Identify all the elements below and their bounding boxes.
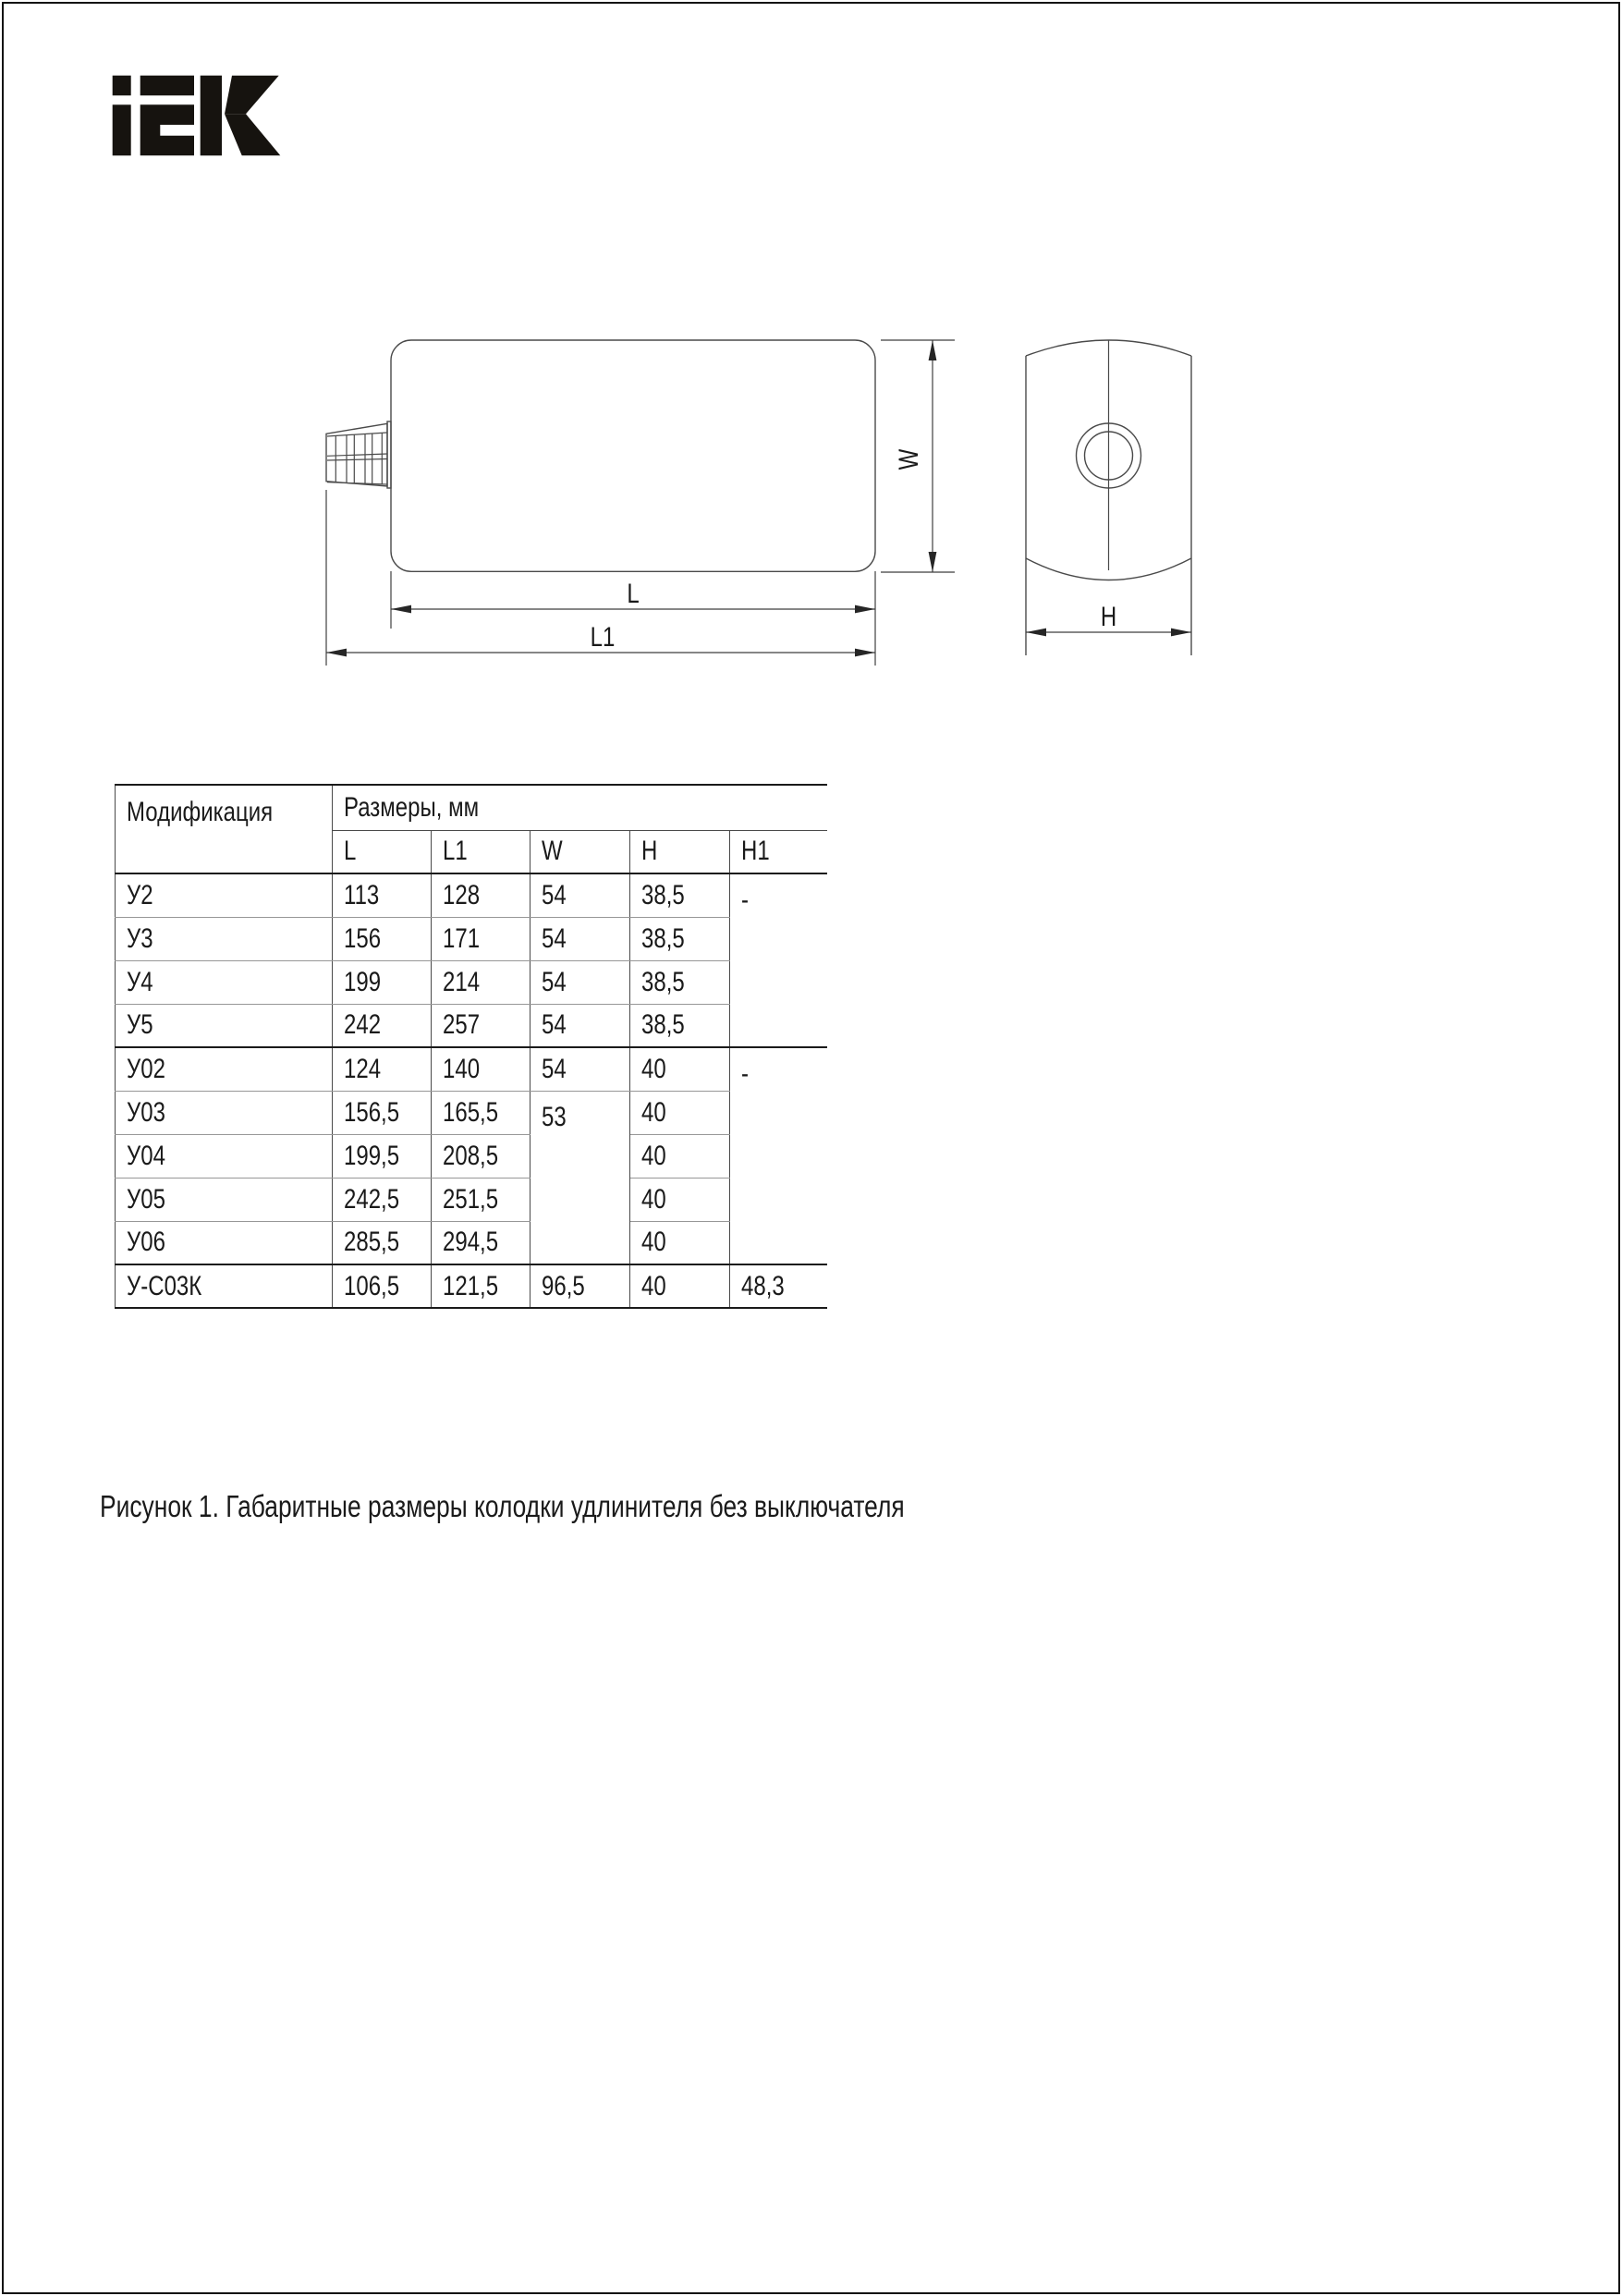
- header-modification: Модификация: [116, 785, 333, 873]
- front-view-body: [391, 340, 875, 571]
- logo-e-top-bar: [140, 76, 194, 96]
- value-cell: 121,5: [432, 1264, 531, 1308]
- value-cell: 54: [531, 1004, 630, 1047]
- table-row: У52422575438,5: [116, 1004, 827, 1047]
- dim-label-L: L: [627, 577, 639, 608]
- value-cell: 38,5: [630, 960, 730, 1004]
- logo-k-stem: [201, 76, 222, 156]
- value-cell: 38,5: [630, 1004, 730, 1047]
- value-cell: 242,5: [333, 1178, 432, 1221]
- dim-label-H: H: [1101, 600, 1116, 631]
- header-W: W: [531, 830, 630, 873]
- table-row: У41992145438,5: [116, 960, 827, 1004]
- figure-caption: Рисунок 1. Габаритные размеры колодки уд…: [100, 1488, 1105, 1525]
- value-cell: 38,5: [630, 917, 730, 960]
- table-header-row-1: Модификация Размеры, мм: [116, 785, 827, 830]
- value-cell: -: [730, 873, 827, 1047]
- header-L1: L1: [432, 830, 531, 873]
- table-row: У05242,5251,540: [116, 1178, 827, 1221]
- value-cell: 214: [432, 960, 531, 1004]
- value-cell: 48,3: [730, 1264, 827, 1308]
- value-cell: 128: [432, 873, 531, 917]
- value-cell: 113: [333, 873, 432, 917]
- value-cell: 140: [432, 1047, 531, 1091]
- value-cell: 285,5: [333, 1221, 432, 1264]
- table-row: У06285,5294,540: [116, 1221, 827, 1264]
- dimension-drawing: L L1 W H: [314, 328, 1220, 698]
- table-row: У021241405440-: [116, 1047, 827, 1091]
- row-label-cell: У06: [116, 1221, 333, 1264]
- table-row: У31561715438,5: [116, 917, 827, 960]
- value-cell: 124: [333, 1047, 432, 1091]
- value-cell: 40: [630, 1178, 730, 1221]
- table-row: У21131285438,5-: [116, 873, 827, 917]
- iek-logo: [102, 65, 296, 166]
- row-label-cell: У03: [116, 1091, 333, 1134]
- logo-e-body: [140, 104, 194, 155]
- value-cell: -: [730, 1047, 827, 1264]
- logo-i-stem: [113, 104, 131, 155]
- value-cell: 242: [333, 1004, 432, 1047]
- row-label-cell: У3: [116, 917, 333, 960]
- value-cell: 54: [531, 1047, 630, 1091]
- table-body: У21131285438,5-У31561715438,5У4199214543…: [116, 873, 827, 1308]
- row-label-cell: У05: [116, 1178, 333, 1221]
- value-cell: 251,5: [432, 1178, 531, 1221]
- header-H1: H1: [730, 830, 827, 873]
- value-cell: 54: [531, 960, 630, 1004]
- row-label-cell: У5: [116, 1004, 333, 1047]
- logo-k-lower-arm: [225, 114, 280, 155]
- value-cell: 40: [630, 1264, 730, 1308]
- row-label-cell: У04: [116, 1134, 333, 1178]
- value-cell: 257: [432, 1004, 531, 1047]
- dim-label-W: W: [892, 448, 923, 470]
- value-cell: 40: [630, 1047, 730, 1091]
- header-L: L: [333, 830, 432, 873]
- row-label-cell: У-С03К: [116, 1264, 333, 1308]
- value-cell: 54: [531, 917, 630, 960]
- value-cell: 106,5: [333, 1264, 432, 1308]
- front-view: [326, 340, 875, 571]
- row-label-cell: У2: [116, 873, 333, 917]
- value-cell: 199: [333, 960, 432, 1004]
- row-label-cell: У4: [116, 960, 333, 1004]
- document-page: L L1 W H Модификация Размеры, мм: [0, 0, 1622, 2296]
- value-cell: 199,5: [333, 1134, 432, 1178]
- value-cell: 40: [630, 1091, 730, 1134]
- table-row: У03156,5165,55340: [116, 1091, 827, 1134]
- logo-k-upper-arm: [225, 76, 279, 115]
- dimensions-table-container: Модификация Размеры, мм L L1 W H H1 У211…: [115, 784, 827, 1309]
- value-cell: 294,5: [432, 1221, 531, 1264]
- dimension-lines: [326, 340, 1191, 666]
- plug-ribs: [327, 433, 387, 484]
- value-cell: 165,5: [432, 1091, 531, 1134]
- row-label-cell: У02: [116, 1047, 333, 1091]
- header-H: H: [630, 830, 730, 873]
- dimensions-table: Модификация Размеры, мм L L1 W H H1 У211…: [115, 784, 827, 1309]
- value-cell: 208,5: [432, 1134, 531, 1178]
- table-row: У-С03К106,5121,596,54048,3: [116, 1264, 827, 1308]
- value-cell: 38,5: [630, 873, 730, 917]
- table-row: У04199,5208,540: [116, 1134, 827, 1178]
- value-cell: 53: [531, 1091, 630, 1264]
- dim-label-L1: L1: [591, 620, 616, 652]
- value-cell: 96,5: [531, 1264, 630, 1308]
- header-dimensions-group: Размеры, мм: [333, 785, 827, 830]
- value-cell: 40: [630, 1221, 730, 1264]
- value-cell: 156,5: [333, 1091, 432, 1134]
- value-cell: 171: [432, 917, 531, 960]
- value-cell: 40: [630, 1134, 730, 1178]
- value-cell: 156: [333, 917, 432, 960]
- logo-i-dot: [113, 76, 131, 96]
- value-cell: 54: [531, 873, 630, 917]
- iek-logo-glyphs: [113, 76, 281, 156]
